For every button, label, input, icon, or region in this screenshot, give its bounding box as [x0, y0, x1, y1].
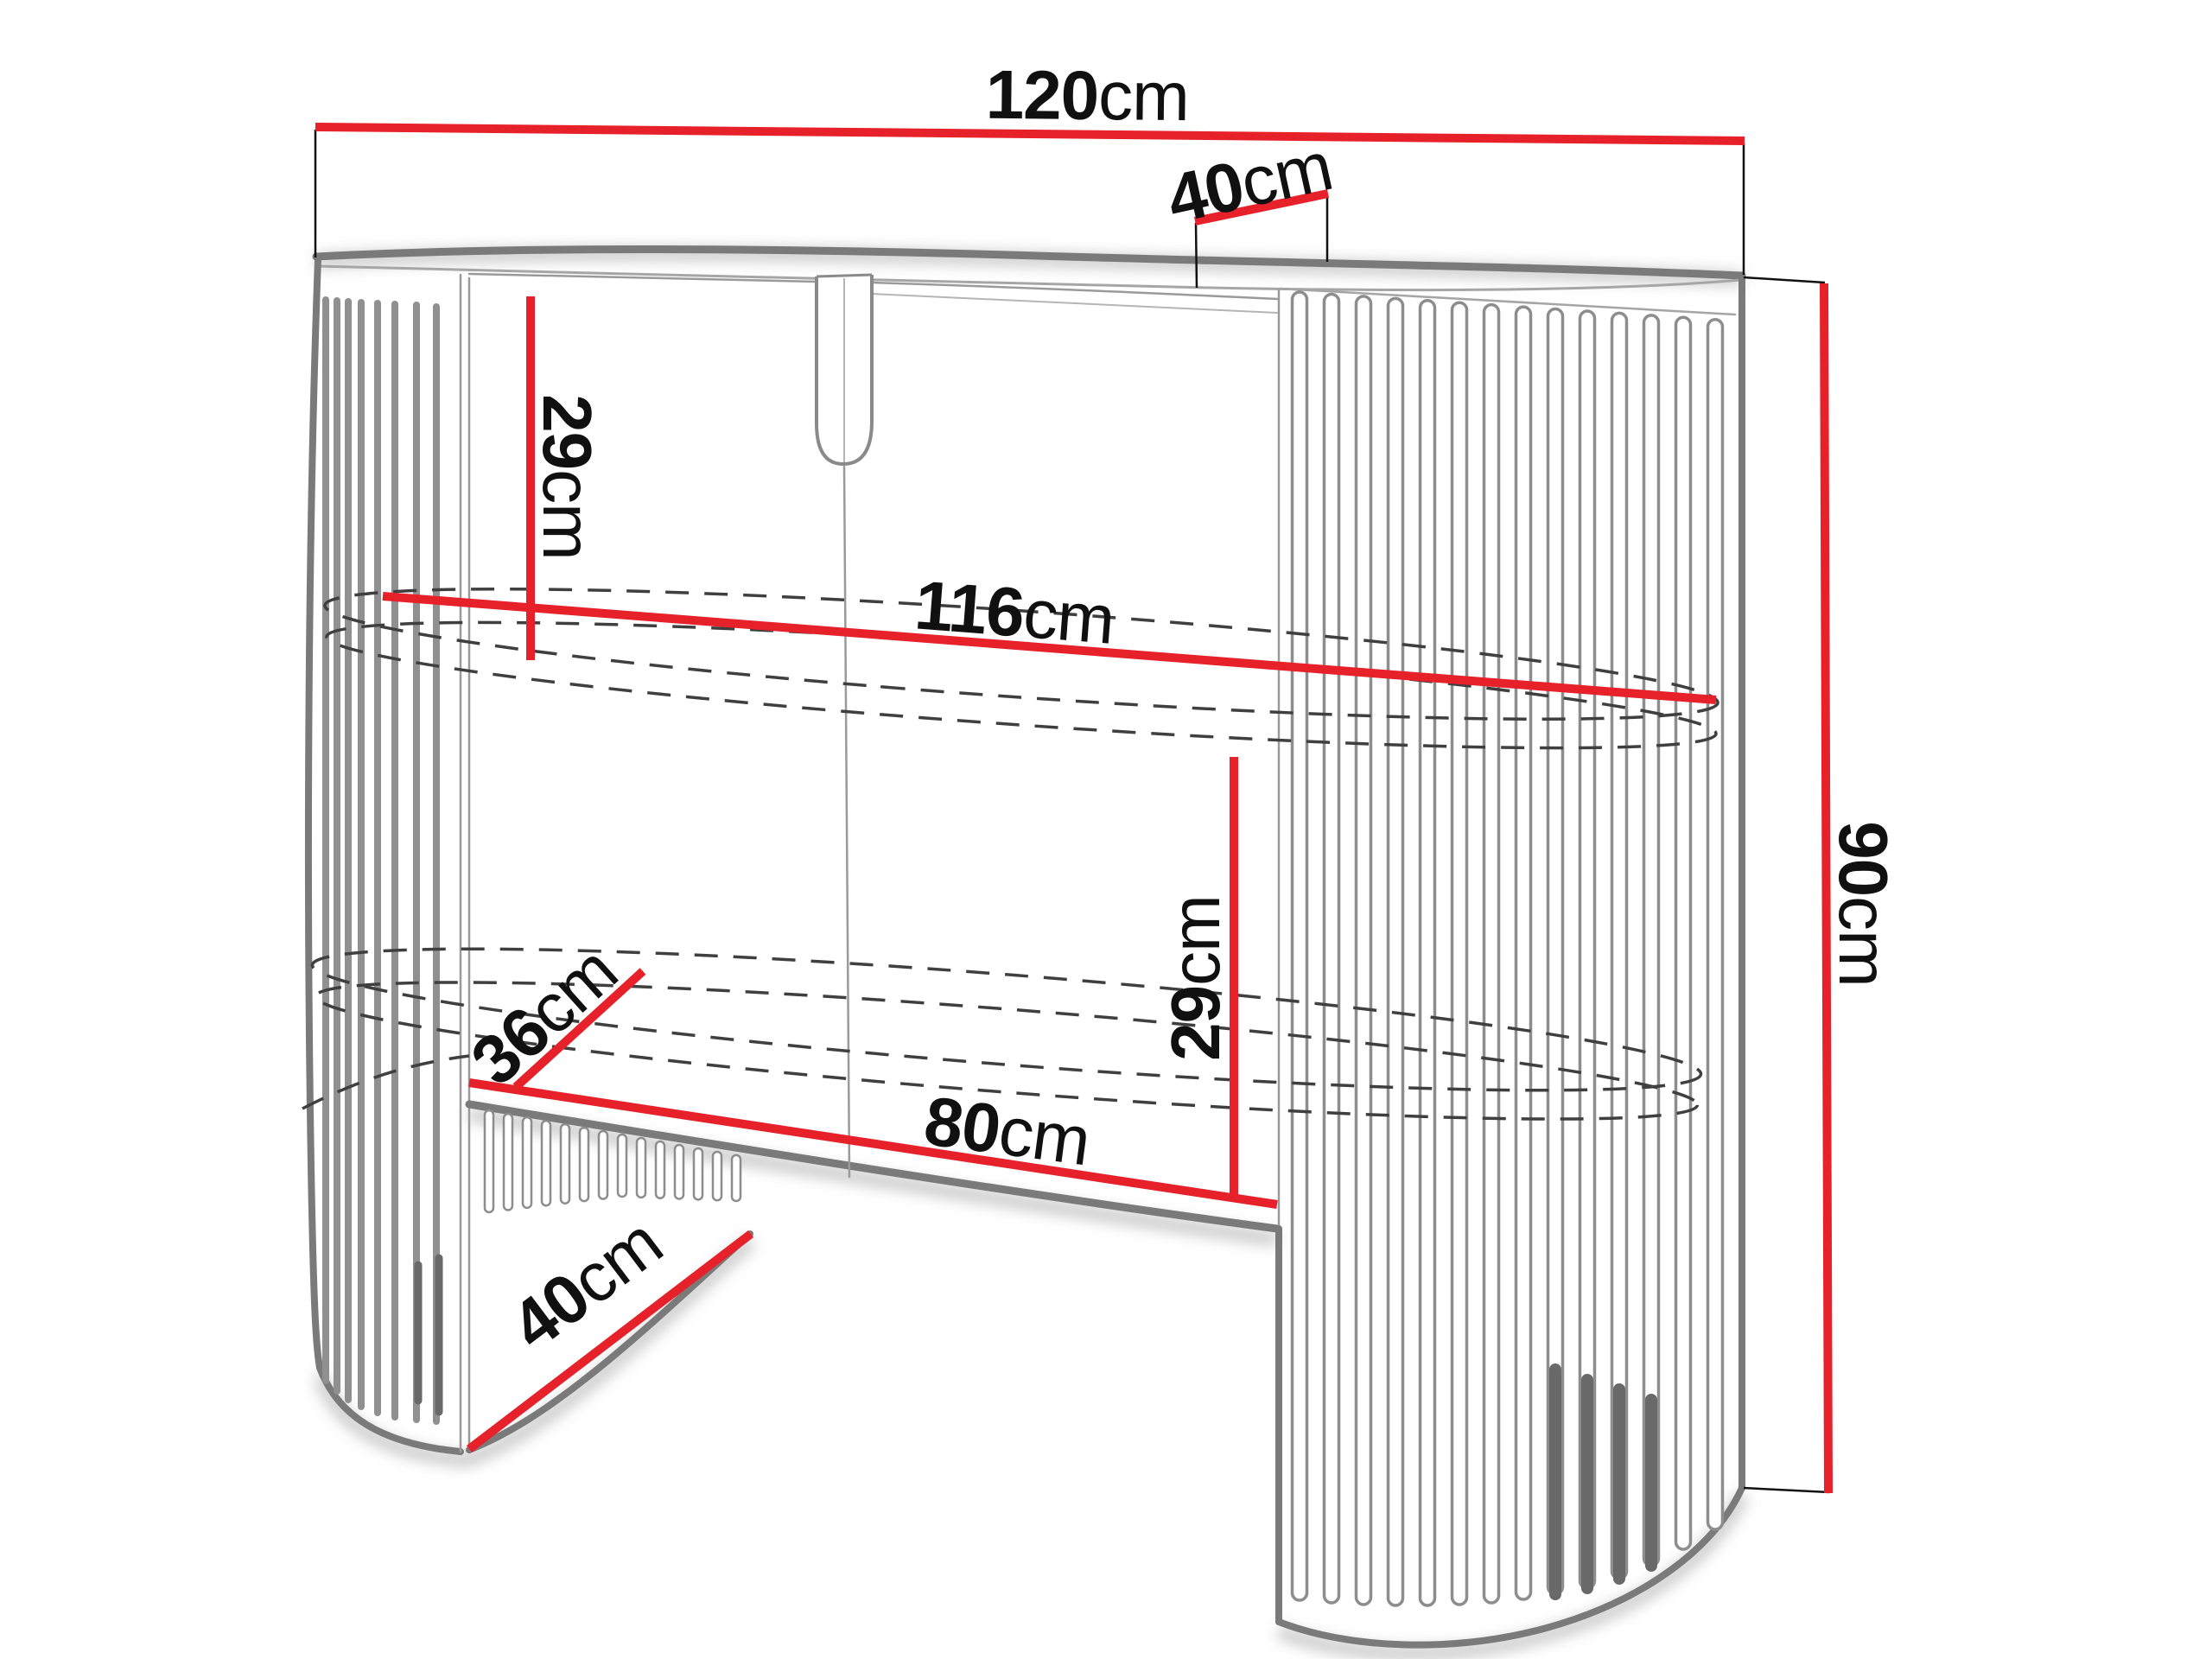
slat	[1293, 292, 1307, 1600]
slat	[523, 1117, 531, 1208]
label-shelf-to-base: 29cm	[1157, 895, 1234, 1061]
slat	[1452, 302, 1467, 1605]
handle-cutout	[817, 275, 872, 464]
dim-line-base-width	[469, 1083, 1277, 1205]
label-top-to-shelf: 29cm	[529, 394, 606, 560]
slat	[542, 1121, 550, 1205]
right-panel-bottom-curve	[1279, 1488, 1742, 1645]
door-seam	[844, 467, 849, 1177]
slat	[580, 1128, 588, 1201]
body-bottom-edge	[469, 1104, 1277, 1229]
slat	[1516, 307, 1531, 1599]
slat	[732, 1155, 741, 1201]
label-inner-width: 116cm	[912, 566, 1117, 658]
slat	[675, 1145, 683, 1199]
label-base-depth: 36cm	[457, 931, 632, 1099]
slat	[694, 1148, 702, 1199]
furniture-dimension-diagram: 120cm 40cm 90cm 116cm 29cm 29cm 36cm 80c…	[0, 0, 2212, 1659]
diagram-canvas: 120cm 40cm 90cm 116cm 29cm 29cm 36cm 80c…	[0, 0, 2212, 1659]
label-height: 90cm	[1825, 821, 1902, 987]
slat	[637, 1138, 645, 1198]
slat	[1676, 317, 1691, 1549]
left-panel-left-edge	[308, 259, 320, 1368]
slat	[504, 1114, 512, 1210]
slat	[656, 1141, 664, 1198]
label-top-depth: 40cm	[1160, 127, 1338, 238]
slat	[1421, 301, 1435, 1605]
slat	[1484, 305, 1499, 1603]
slat	[599, 1131, 607, 1199]
slat	[1325, 294, 1339, 1603]
slat	[1708, 320, 1723, 1529]
slat	[1389, 298, 1403, 1605]
slat	[1644, 315, 1659, 1566]
slat	[1357, 296, 1371, 1605]
label-total-width: 120cm	[985, 56, 1189, 135]
slat	[618, 1135, 626, 1197]
slat	[561, 1124, 569, 1204]
right-panel-top-rim	[1281, 289, 1735, 315]
slat	[485, 1110, 493, 1212]
slat	[713, 1152, 721, 1200]
